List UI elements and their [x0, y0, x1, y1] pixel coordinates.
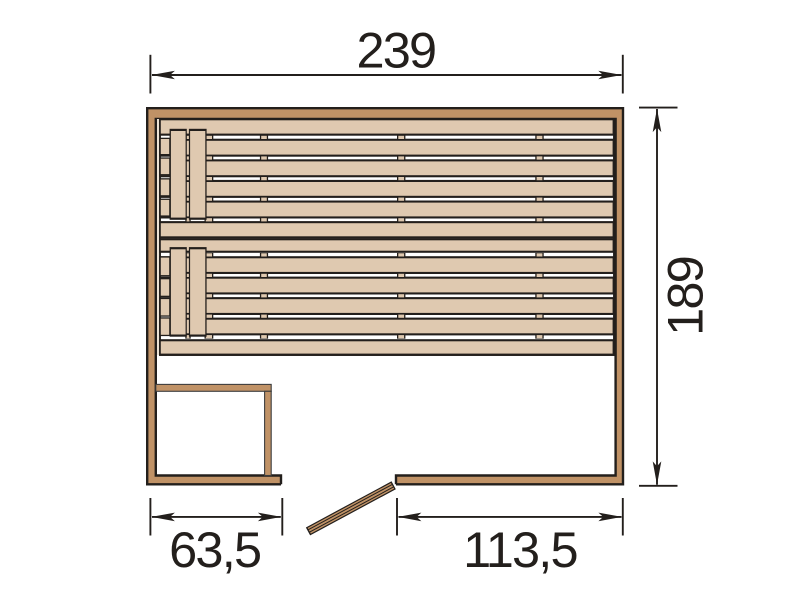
- svg-text:113,5: 113,5: [463, 521, 577, 578]
- svg-text:239: 239: [356, 21, 435, 78]
- svg-text:189: 189: [657, 257, 714, 336]
- svg-text:63,5: 63,5: [169, 521, 260, 578]
